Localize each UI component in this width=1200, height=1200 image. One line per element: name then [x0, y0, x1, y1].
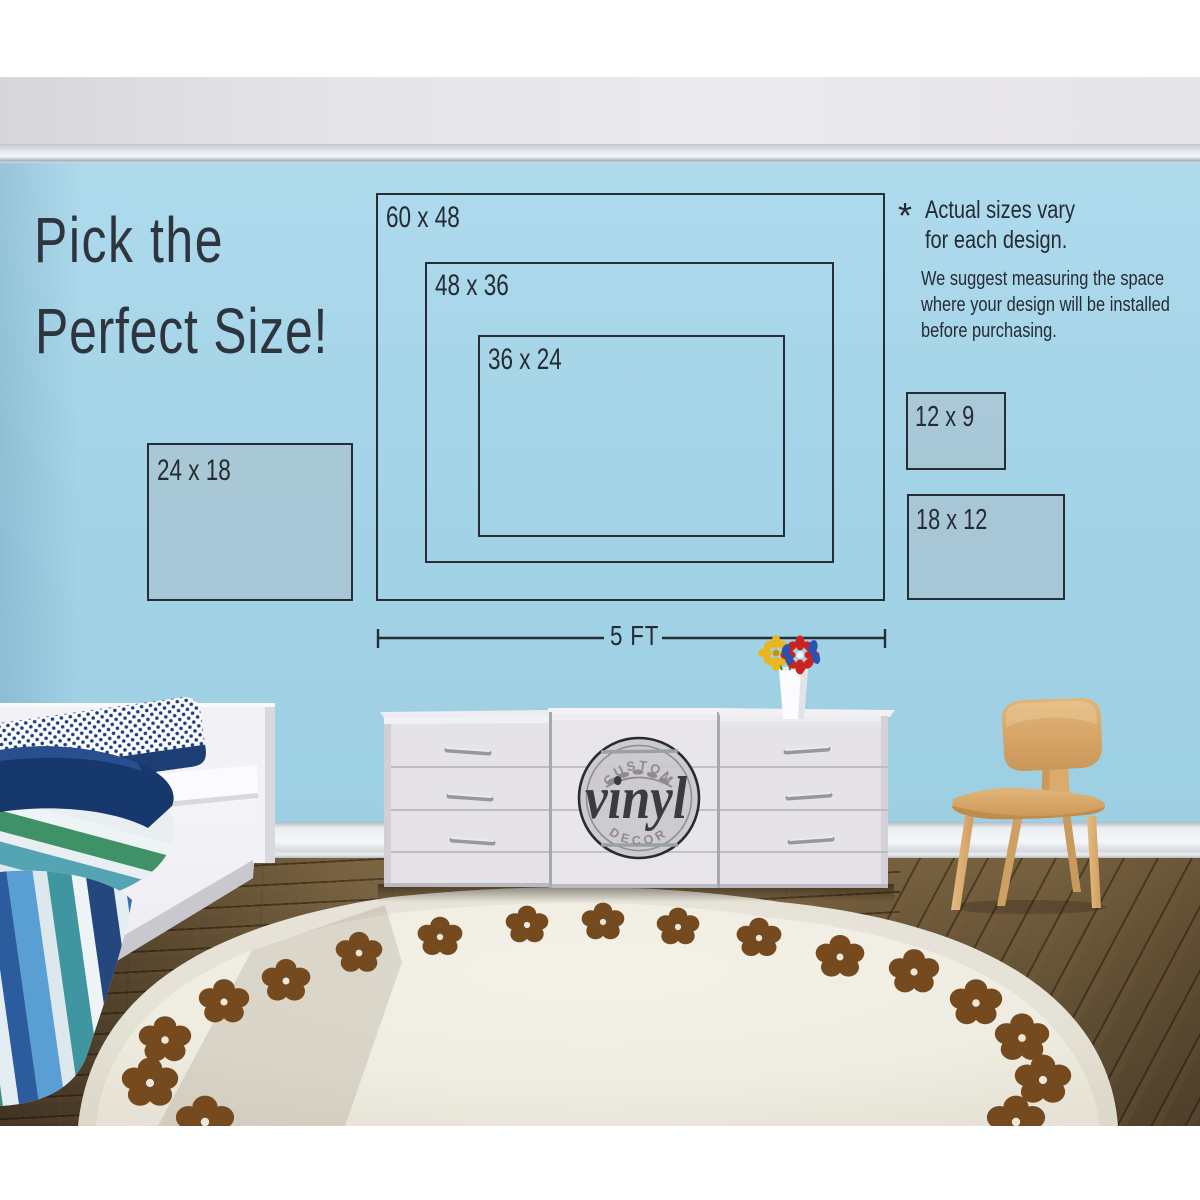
svg-text:vinyl: vinyl — [585, 765, 687, 832]
